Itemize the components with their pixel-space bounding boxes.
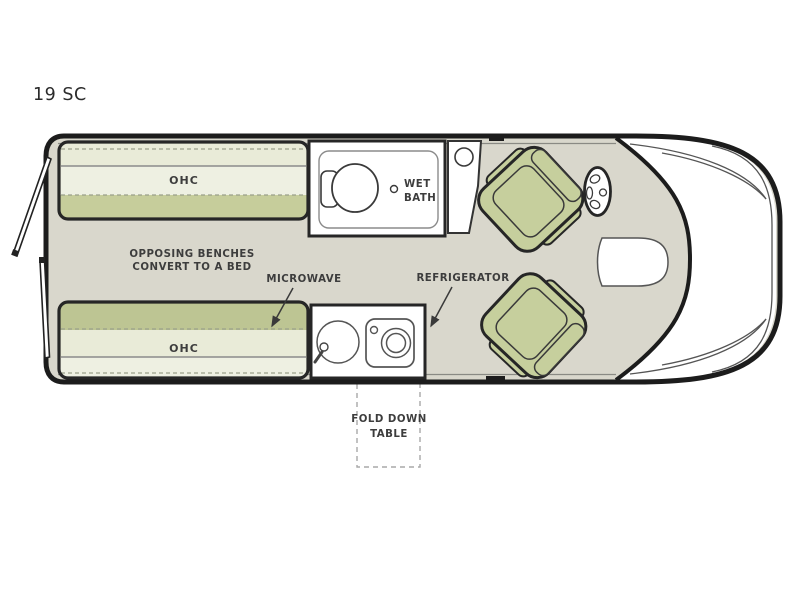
wet-bath-label-1: WET [404, 179, 431, 190]
steering-wheel [585, 168, 611, 216]
top-edge-marker [489, 134, 504, 141]
steering-wheel-hub [600, 189, 607, 196]
fold-table-label-2: TABLE [370, 429, 408, 440]
fold-down-table: FOLD DOWN TABLE [351, 383, 427, 467]
toilet-bowl [332, 164, 378, 212]
benches-note-line1: OPPOSING BENCHES [129, 249, 254, 260]
fold-table-label-1: FOLD DOWN [351, 414, 427, 425]
model-title: 19 SC [33, 85, 87, 105]
microwave-label: MICROWAVE [266, 274, 341, 285]
floorplan-drawing: 19 SC OHC OHC [0, 0, 800, 600]
bench-bottom-band-olive [59, 302, 308, 330]
bench-top-band-pale [59, 142, 308, 166]
bench-top-ohc-label: OHC [169, 174, 199, 187]
refrigerator-label: REFRIGERATOR [416, 273, 509, 284]
cooktop-knob [371, 327, 378, 334]
bench-top: OHC [59, 142, 308, 219]
bottom-edge-marker [486, 376, 505, 383]
sink-faucet-base [320, 343, 328, 351]
sink-basin [317, 321, 359, 363]
bench-bottom-band-pale [59, 357, 308, 378]
bench-bottom: OHC [59, 302, 308, 378]
benches-note-line2: CONVERT TO A BED [132, 262, 251, 273]
bench-bottom-ohc-label: OHC [169, 342, 199, 355]
rear-door-bottom-endcap [39, 257, 45, 263]
wet-bath-drain [391, 186, 398, 193]
fold-down-table-outline [357, 383, 420, 467]
dashboard-console [598, 238, 669, 286]
bench-top-band-olive [59, 195, 308, 219]
entry-cabinet-knob [455, 148, 473, 166]
wet-bath-label-2: BATH [404, 193, 436, 204]
floorplan-page: 19 SC OHC OHC [0, 0, 800, 600]
galley-counter [311, 305, 425, 378]
steering-wheel-spoke-left [587, 187, 593, 199]
wet-bath: WET BATH [309, 141, 445, 236]
